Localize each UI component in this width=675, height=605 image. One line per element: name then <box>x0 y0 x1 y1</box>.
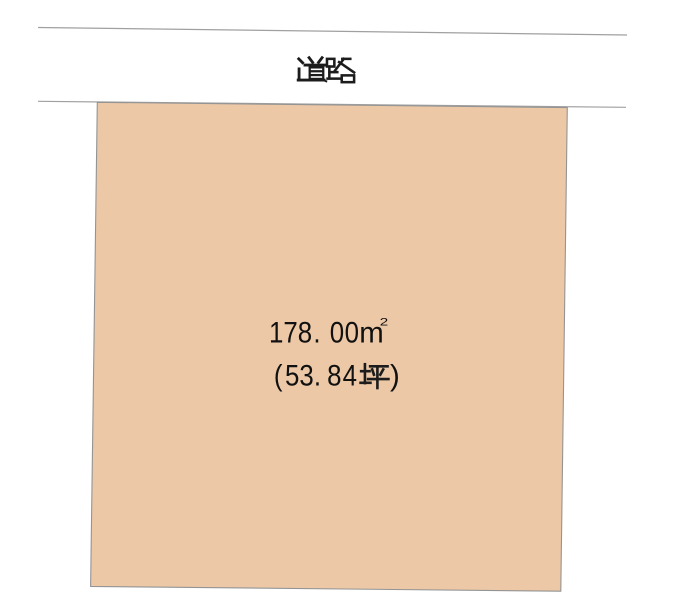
svg-text:): ) <box>390 359 400 392</box>
svg-text:00: 00 <box>330 316 359 349</box>
svg-text:(53.84: (53.84 <box>274 359 357 392</box>
svg-text:178.: 178. <box>269 316 321 349</box>
svg-text:2: 2 <box>380 316 388 328</box>
